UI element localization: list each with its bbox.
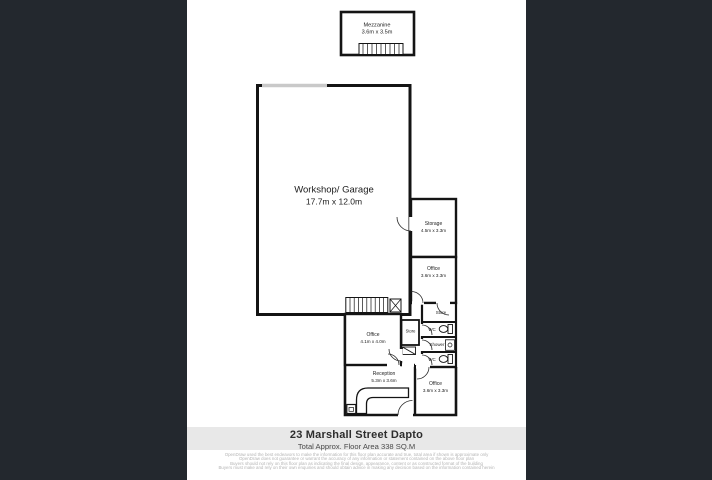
room-label-reception: Reception 5.3m x 3.6m [371, 371, 396, 383]
room-name: Mezzanine [362, 23, 393, 30]
room-dims: 3.6m x 3.3m [423, 387, 448, 393]
room-label-wc-bottom: WC [428, 357, 435, 363]
office-bottom-door-arc [417, 367, 429, 379]
room-label-mezzanine: Mezzanine 3.6m x 3.5m [362, 23, 393, 38]
room-dims: 5.3m x 3.6m [371, 377, 396, 383]
reception-counter [357, 388, 409, 414]
address-banner: 23 Marshall Street Dapto Total Approx. F… [187, 427, 526, 450]
entry-door-arc [398, 401, 413, 416]
room-label-office-right: Office 3.6m x 3.3m [421, 266, 446, 278]
floorplan-drawing [0, 0, 712, 480]
shower-tray-icon [446, 340, 455, 351]
room-label-office-bottom: Office 3.6m x 3.3m [423, 381, 448, 393]
room-dims: 3.6m x 3.5m [362, 30, 393, 37]
room-dims: 4.1m x 4.0m [360, 338, 385, 344]
room-name: Workshop/ Garage [294, 184, 374, 196]
banner-subtitle: Total Approx. Floor Area 338 SQ.M [187, 442, 526, 451]
room-label-store-right: Store [436, 310, 447, 316]
room-name: Store [436, 310, 447, 316]
room-label-shower: Shower [430, 342, 445, 348]
floorplan-screenshot: Mezzanine 3.6m x 3.5m Workshop/ Garage 1… [0, 0, 712, 480]
disclaimer: OpenDraw used the best endeavors to make… [187, 453, 526, 472]
disclaimer-line-4: Buyers must make and rely on their own e… [187, 466, 526, 471]
room-dims: 4.5m x 3.3m [421, 227, 446, 233]
room-name: Shower [430, 342, 445, 348]
banner-title: 23 Marshall Street Dapto [187, 429, 526, 441]
room-name: Store [406, 328, 416, 333]
room-name: WC [428, 357, 435, 363]
toilet-icon [439, 355, 452, 364]
room-label-store-small: Store [406, 328, 416, 333]
toilet-icon [439, 325, 452, 334]
room-label-wc-top: WC [428, 327, 435, 333]
room-dims: 3.6m x 3.3m [421, 272, 446, 278]
hall-cupboard-icon [403, 347, 416, 355]
room-name: Reception [371, 371, 396, 378]
room-dims: 17.7m x 12.0m [294, 197, 374, 208]
reception-cabinet-icon [347, 405, 356, 414]
mezzanine-stairs-icon [359, 44, 403, 55]
room-label-workshop: Workshop/ Garage 17.7m x 12.0m [294, 184, 374, 207]
stairs-icon [346, 298, 401, 313]
office-right-walls [411, 257, 456, 303]
room-label-office-mid: Office 4.1m x 4.0m [360, 332, 385, 344]
room-name: WC [428, 327, 435, 333]
room-label-storage: Storage 4.5m x 3.3m [421, 221, 446, 233]
